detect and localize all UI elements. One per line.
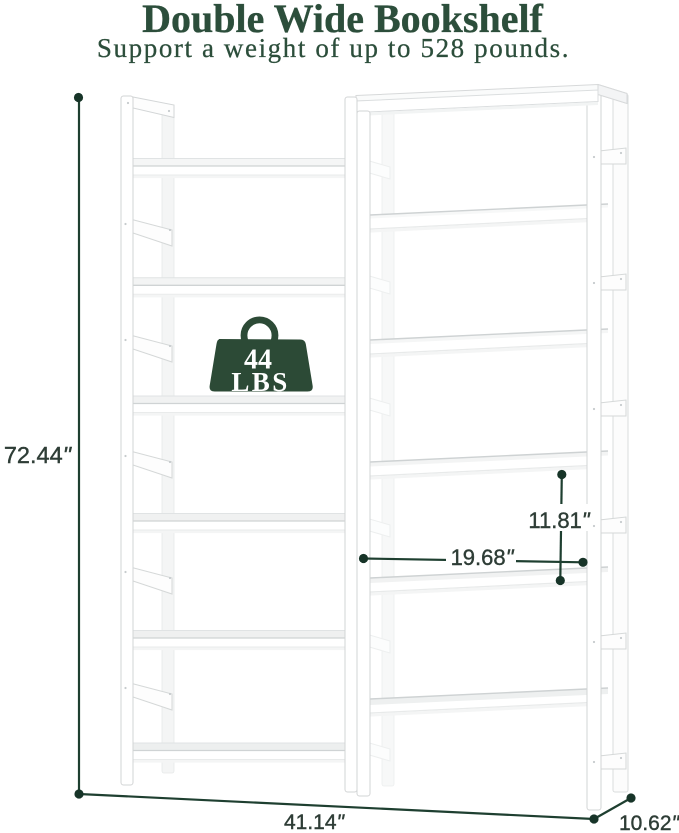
svg-text:19.68": 19.68": [451, 545, 515, 570]
svg-text:11.81": 11.81": [528, 508, 590, 533]
svg-text:41.14": 41.14": [284, 811, 346, 833]
svg-text:72.44": 72.44": [4, 442, 73, 468]
svg-text:LBS: LBS: [231, 367, 289, 397]
svg-text:10.62": 10.62": [619, 812, 679, 833]
